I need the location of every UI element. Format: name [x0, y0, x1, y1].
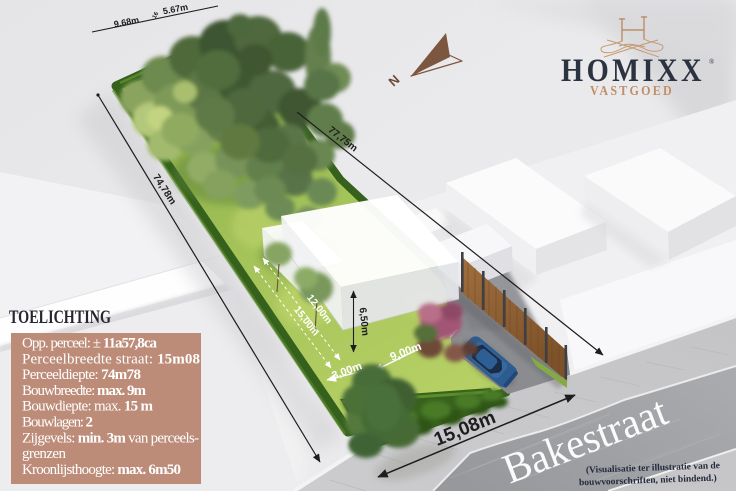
- svg-text:Bouwdiepte: max. 15 m: Bouwdiepte: max. 15 m: [22, 399, 154, 415]
- svg-text:Perceeldiepte: 74m78: Perceeldiepte: 74m78: [22, 367, 141, 383]
- svg-text:Bouwlagen: 2: Bouwlagen: 2: [22, 415, 93, 431]
- svg-text:Perceelbreedte straat: 15m08: Perceelbreedte straat: 15m08: [22, 351, 200, 367]
- svg-text:grenzen: grenzen: [22, 446, 67, 462]
- svg-text:®: ®: [709, 58, 715, 66]
- svg-text:TOELICHTING: TOELICHTING: [9, 308, 111, 328]
- svg-text:VASTGOED: VASTGOED: [590, 83, 674, 98]
- svg-text:Bouwbreedte: max. 9m: Bouwbreedte: max. 9m: [22, 383, 147, 399]
- svg-text:Kroonlijsthoogte: max. 6m50: Kroonlijsthoogte: max. 6m50: [22, 462, 181, 478]
- svg-text:Zijgevels: min. 3m van perceel: Zijgevels: min. 3m van perceels-: [22, 430, 199, 446]
- svg-text:Opp. perceel: ± 11a57,8ca: Opp. perceel: ± 11a57,8ca: [22, 336, 158, 352]
